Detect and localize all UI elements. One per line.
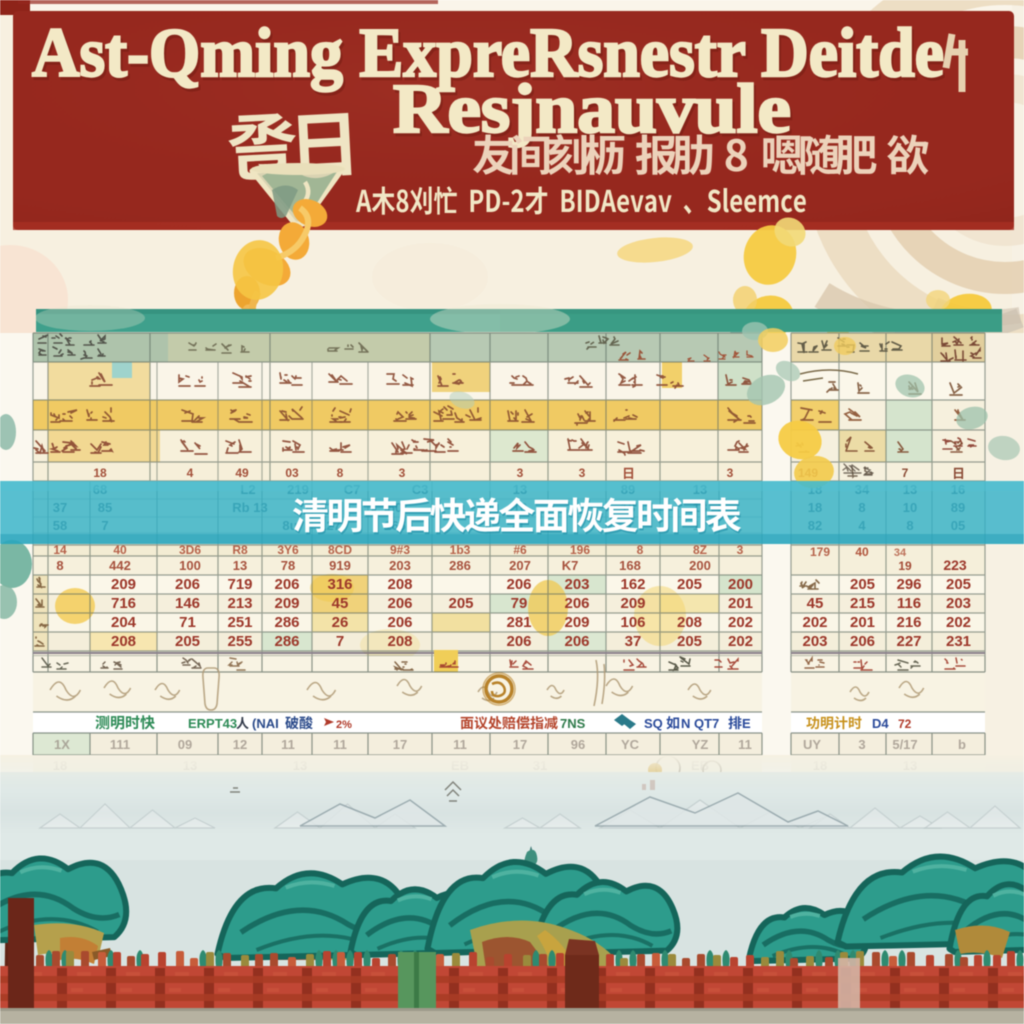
svg-text:205: 205 [175,633,200,650]
svg-text:ERPT43: ERPT43 [188,716,237,731]
svg-text:205: 205 [677,576,702,593]
svg-text:40: 40 [113,543,127,557]
svg-text:206: 206 [506,633,531,650]
svg-text:204: 204 [111,614,137,631]
svg-text:3: 3 [399,466,406,480]
svg-text:45: 45 [807,595,824,612]
svg-text:206: 206 [175,576,200,593]
svg-text:03: 03 [285,466,299,480]
svg-text:5/17: 5/17 [892,737,917,752]
svg-text:UY: UY [803,737,821,752]
svg-text:34: 34 [894,547,907,559]
svg-text:201: 201 [728,595,753,612]
svg-text:201: 201 [850,614,875,631]
svg-text:286: 286 [274,633,299,650]
svg-text:205: 205 [850,576,875,593]
svg-text:3: 3 [517,466,524,480]
svg-text:202: 202 [946,614,971,631]
svg-text:19: 19 [898,559,912,573]
svg-text:216: 216 [896,614,921,631]
svg-text:716: 716 [111,595,136,612]
svg-text:11: 11 [333,737,347,752]
svg-text:49: 49 [235,466,249,480]
svg-text:203: 203 [389,558,411,573]
svg-text:206: 206 [274,576,299,593]
svg-text:11: 11 [281,737,295,752]
svg-text:45: 45 [332,595,349,612]
svg-text:(NAI: (NAI [252,716,279,731]
svg-text:208: 208 [111,633,136,650]
svg-text:208: 208 [387,633,412,650]
svg-text:3: 3 [737,543,744,557]
svg-text:208: 208 [387,576,412,593]
svg-text:209: 209 [620,595,645,612]
svg-text:206: 206 [564,633,589,650]
svg-text:213: 213 [227,595,252,612]
svg-text:#6: #6 [513,543,527,557]
svg-text:203: 203 [564,576,589,593]
svg-text:YC: YC [621,737,640,752]
svg-text:162: 162 [620,576,645,593]
svg-text:4: 4 [187,466,194,480]
svg-text:7NS: 7NS [560,716,586,731]
svg-text:1X: 1X [54,737,70,752]
svg-text:442: 442 [109,558,131,573]
svg-text:13: 13 [233,558,247,573]
svg-text:71: 71 [179,614,196,631]
svg-text:179: 179 [810,545,830,559]
svg-text:207: 207 [509,558,531,573]
svg-text:7: 7 [336,633,344,650]
svg-text:209: 209 [564,614,589,631]
svg-text:281: 281 [506,614,531,631]
svg-text:196: 196 [570,543,590,557]
svg-text:17: 17 [513,737,527,752]
svg-text:116: 116 [897,595,921,612]
svg-text:316: 316 [327,576,352,593]
svg-text:3: 3 [727,466,734,480]
svg-text:231: 231 [946,633,971,650]
svg-text:100: 100 [179,558,201,573]
svg-text:206: 206 [387,614,412,631]
svg-text:208: 208 [677,614,702,631]
svg-text:7: 7 [902,466,909,480]
svg-text:26: 26 [332,614,349,631]
svg-text:12: 12 [233,737,247,752]
svg-text:215: 215 [850,595,875,612]
svg-text:202: 202 [728,633,753,650]
svg-text:200: 200 [689,558,711,573]
svg-text:D4: D4 [872,716,889,731]
svg-text:223: 223 [943,557,967,573]
svg-text:K7: K7 [562,558,579,573]
svg-text:YZ: YZ [692,737,709,752]
svg-text:72: 72 [898,717,912,731]
svg-text:11: 11 [453,737,467,752]
svg-text:3D6: 3D6 [179,543,201,557]
svg-text:SQ: SQ [644,716,663,731]
svg-text:14: 14 [53,543,67,557]
svg-text:919: 919 [329,558,351,573]
svg-text:R8: R8 [232,543,248,557]
svg-text:18: 18 [93,466,107,480]
svg-text:286: 286 [449,558,471,573]
svg-text:96: 96 [571,737,585,752]
svg-text:11: 11 [738,737,752,752]
svg-text:206: 206 [506,576,531,593]
svg-text:200: 200 [728,576,753,593]
svg-text:202: 202 [728,614,753,631]
svg-text:9#3: 9#3 [390,543,410,557]
svg-text:37: 37 [625,633,642,650]
svg-text:209: 209 [274,595,299,612]
svg-text:205: 205 [677,633,702,650]
svg-text:206: 206 [387,595,412,612]
svg-text:106: 106 [620,614,645,631]
svg-text:205: 205 [448,595,473,612]
svg-text:719: 719 [227,576,252,593]
svg-text:8CD: 8CD [328,543,352,557]
svg-text:3: 3 [858,737,865,752]
svg-text:209: 209 [111,576,136,593]
svg-text:3: 3 [579,466,586,480]
svg-text:203: 203 [946,595,971,612]
svg-text:227: 227 [896,633,921,650]
svg-text:206: 206 [564,595,589,612]
svg-text:202: 202 [802,614,827,631]
svg-text:E: E [742,716,751,731]
svg-text:286: 286 [274,614,299,631]
svg-text:78: 78 [281,558,295,573]
svg-text:17: 17 [393,737,407,752]
svg-text:N QT7: N QT7 [681,716,719,731]
svg-text:2%: 2% [336,719,352,731]
svg-text:8: 8 [637,543,644,557]
svg-text:1b3: 1b3 [450,543,471,557]
svg-text:8Z: 8Z [693,543,707,557]
svg-text:146: 146 [175,595,200,612]
svg-text:251: 251 [227,614,252,631]
svg-text:b: b [958,737,966,752]
svg-text:255: 255 [227,633,252,650]
svg-text:168: 168 [619,558,641,573]
svg-text:8: 8 [56,558,63,573]
svg-text:205: 205 [946,576,971,593]
svg-text:296: 296 [896,576,921,593]
svg-text:3Y6: 3Y6 [277,543,299,557]
svg-text:111: 111 [110,737,130,752]
svg-text:8: 8 [337,466,344,480]
svg-text:79: 79 [511,595,528,612]
svg-text:40: 40 [855,545,869,559]
svg-text:203: 203 [802,633,827,650]
svg-text:09: 09 [178,737,192,752]
svg-text:206: 206 [850,633,875,650]
